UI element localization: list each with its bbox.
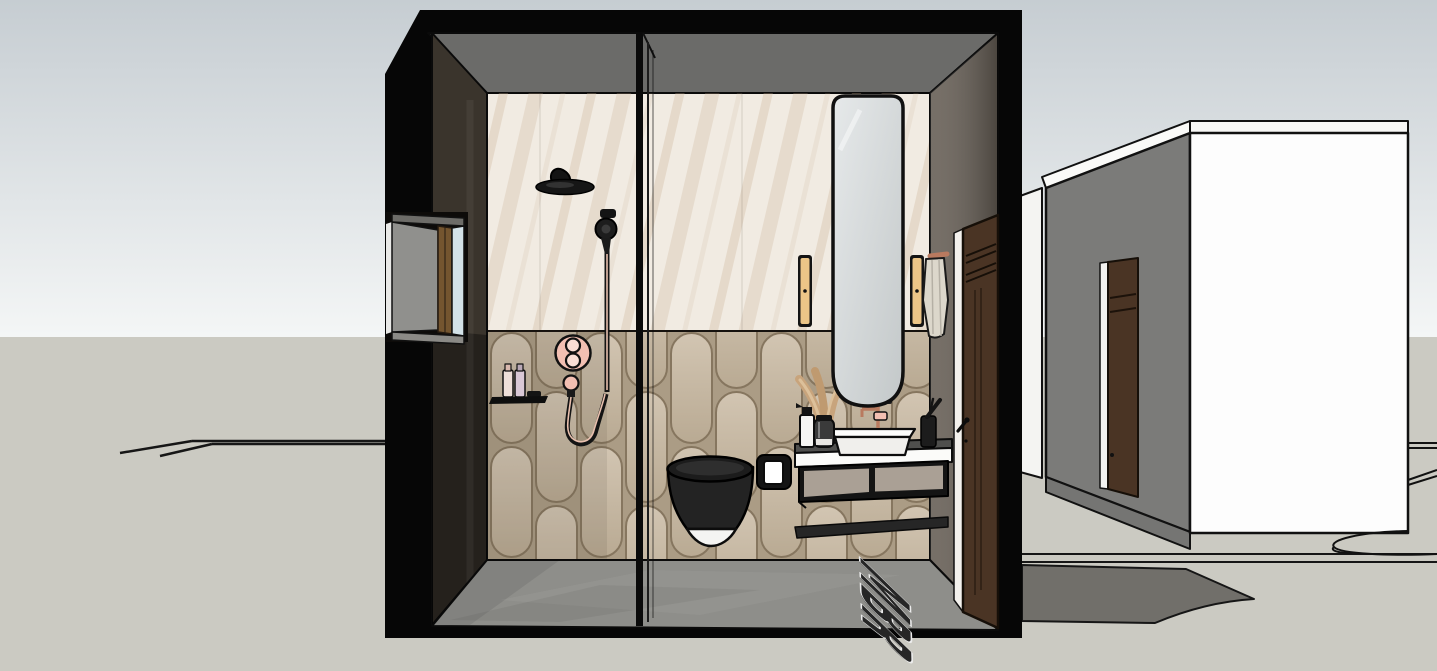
annex-door-jamb — [1100, 262, 1108, 489]
vessel-sink — [830, 429, 915, 455]
door-trim — [954, 229, 963, 612]
annex-white-band — [1190, 121, 1408, 133]
glass-jar — [814, 415, 834, 447]
window-reveal — [392, 222, 438, 332]
bathroom-module: MBR MBR — [385, 10, 1022, 671]
bathroom-door[interactable] — [954, 215, 998, 628]
soap-tray — [527, 391, 541, 397]
annex-door-handle — [1110, 453, 1114, 457]
annex-white-wall — [1190, 133, 1408, 533]
drawer-front-right[interactable] — [875, 466, 943, 492]
window — [386, 212, 468, 344]
sconce-right — [910, 255, 924, 327]
annex-edge-sliver — [1020, 188, 1042, 478]
window-outer-trim — [386, 222, 392, 334]
ceiling — [428, 33, 998, 93]
bathroom-section-render: MBR MBR — [0, 0, 1437, 671]
window-glass — [452, 226, 464, 336]
towel — [923, 254, 948, 338]
toilet-paper-holder — [757, 455, 791, 489]
drawer-front-left[interactable] — [804, 469, 869, 498]
towel-hook — [930, 254, 947, 256]
lotion-bottle — [515, 370, 525, 397]
shampoo-bottle — [503, 370, 513, 397]
shelf-board — [489, 396, 548, 404]
mirror — [833, 96, 903, 406]
hose-outlet — [564, 376, 579, 391]
faucet-handle[interactable] — [874, 412, 887, 420]
paper-roll — [764, 461, 783, 484]
render-viewport: MBR MBR — [0, 0, 1437, 671]
annex-doorway — [1100, 258, 1138, 497]
sconce-left — [798, 255, 812, 327]
